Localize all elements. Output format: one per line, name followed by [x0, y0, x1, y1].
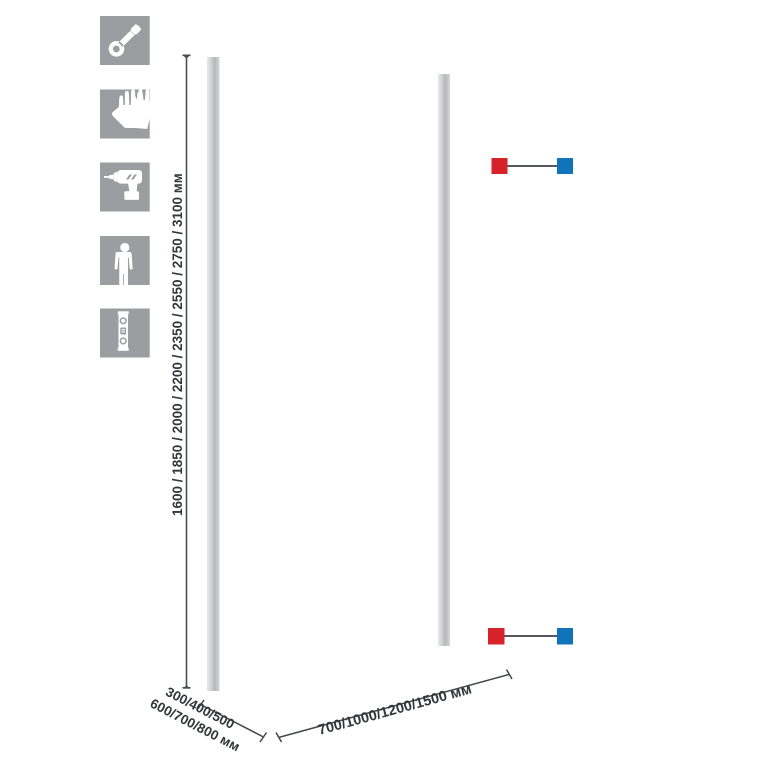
svg-text:700/1000/1200/1500 мм: 700/1000/1200/1500 мм: [316, 682, 473, 739]
svg-text:1600 / 1850 / 2000 / 2200 / 23: 1600 / 1850 / 2000 / 2200 / 2350 / 2550 …: [170, 173, 185, 516]
